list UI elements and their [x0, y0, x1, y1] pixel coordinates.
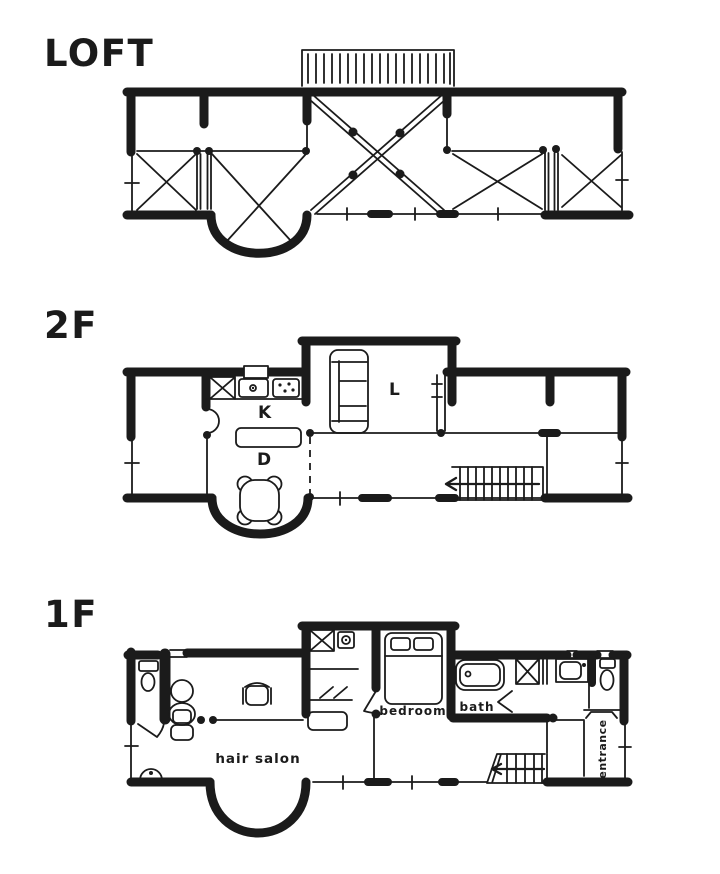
washer-icon	[516, 659, 547, 684]
second-floor-label: 2F	[44, 304, 98, 347]
toilet-icon	[600, 659, 615, 690]
balcony-hatch-icon	[302, 50, 454, 86]
dining-label: D	[257, 450, 271, 470]
kitchen-sink-icon	[239, 379, 268, 397]
loft-plan: LOFT	[44, 32, 629, 253]
stairs-icon	[446, 467, 543, 500]
stairs-icon	[487, 754, 547, 783]
kitchen-label: K	[258, 403, 272, 423]
sofa-icon	[330, 350, 368, 433]
hair-salon-label: hair salon	[215, 751, 300, 767]
first-floor-plan: 1F	[44, 593, 631, 833]
second-floor-walls	[127, 341, 628, 534]
dining-table-icon	[238, 477, 282, 525]
washing-machine-icon	[310, 630, 354, 651]
toilet-icon	[139, 661, 158, 691]
floor-plan-sheet: LOFT	[0, 0, 720, 874]
stove-icon	[273, 379, 299, 397]
window-icon	[244, 366, 268, 378]
client-chair-icon	[243, 683, 271, 705]
bath-label: bath	[460, 700, 495, 714]
entrance-label: entrance	[596, 719, 609, 778]
second-floor-hinge-dots	[203, 429, 445, 501]
first-floor-walls	[128, 626, 628, 833]
living-label: L	[389, 380, 400, 400]
bed-icon	[385, 633, 442, 704]
kitchen-counter-icon	[236, 428, 301, 447]
barber-chair-icon	[169, 680, 195, 740]
washbasin-icon	[556, 659, 588, 682]
loft-floor-label: LOFT	[44, 32, 154, 75]
cabinet-icon	[308, 712, 347, 730]
bedroom-label: bedroom	[379, 704, 446, 718]
second-floor-plan: 2F	[44, 304, 628, 534]
first-floor-label: 1F	[44, 593, 98, 636]
